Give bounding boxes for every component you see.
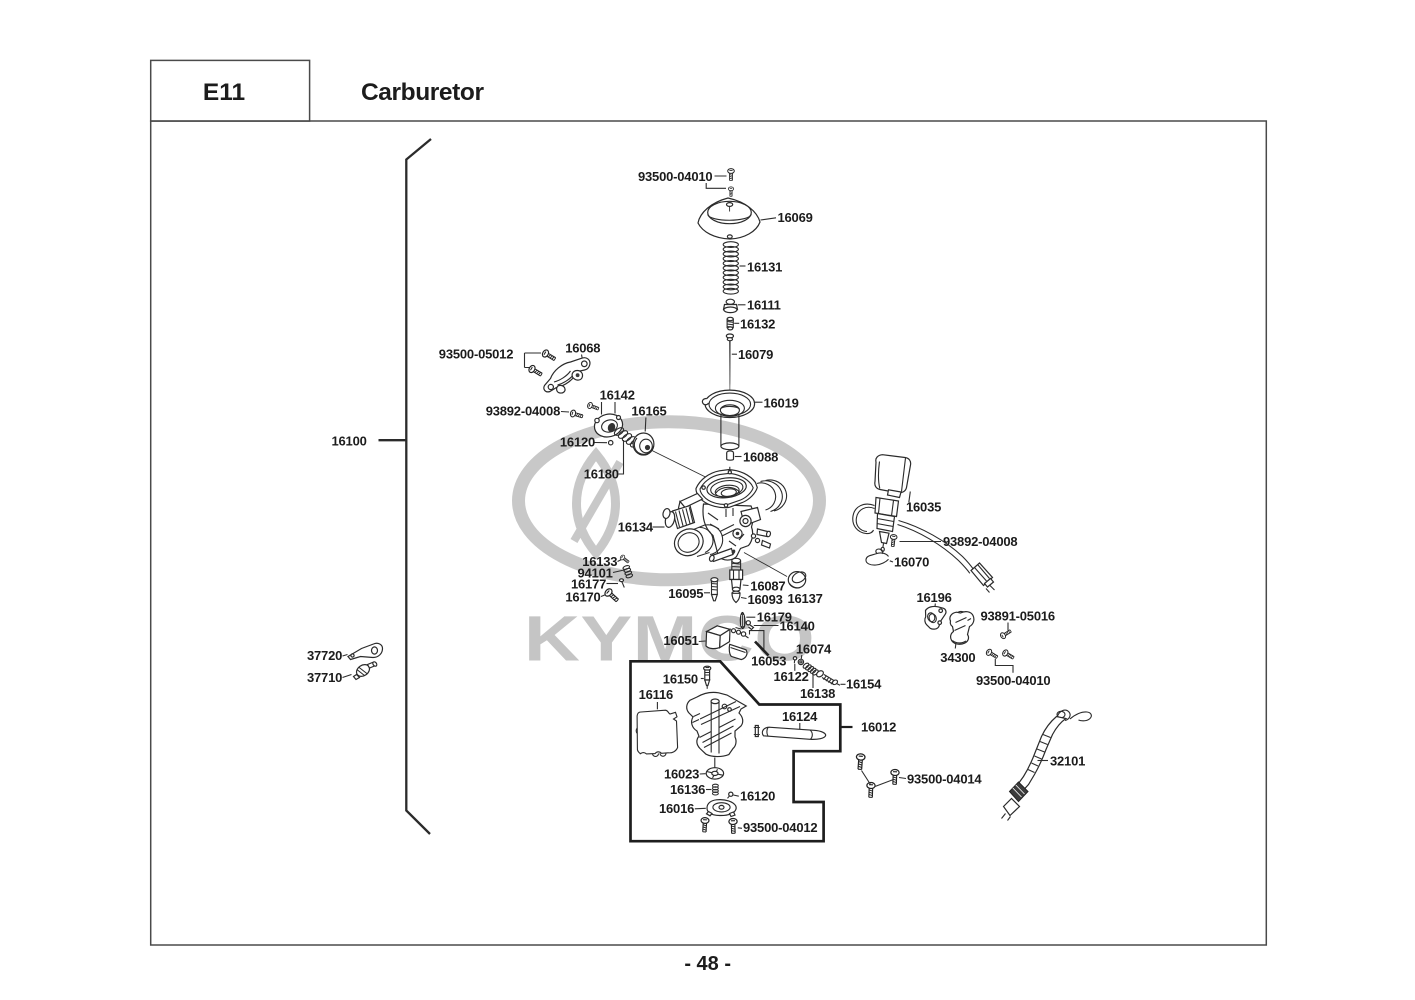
svg-text:16120: 16120 — [740, 789, 775, 804]
svg-text:93891-05016: 93891-05016 — [981, 609, 1055, 624]
svg-text:16124: 16124 — [782, 709, 818, 724]
svg-text:93500-04010: 93500-04010 — [638, 169, 712, 184]
svg-text:34300: 34300 — [940, 650, 975, 665]
svg-text:16111: 16111 — [747, 298, 781, 313]
svg-text:16053: 16053 — [751, 654, 786, 669]
svg-text:93500-04010: 93500-04010 — [976, 673, 1050, 688]
svg-text:Carburetor: Carburetor — [361, 79, 484, 106]
svg-text:16095: 16095 — [668, 586, 703, 601]
svg-text:16131: 16131 — [747, 260, 782, 275]
svg-text:16154: 16154 — [846, 677, 882, 692]
svg-text:16138: 16138 — [800, 686, 835, 701]
svg-text:16069: 16069 — [778, 210, 813, 225]
svg-text:16093: 16093 — [748, 592, 783, 607]
svg-text:16196: 16196 — [917, 590, 952, 605]
svg-text:16180: 16180 — [584, 467, 619, 482]
svg-text:16035: 16035 — [906, 500, 941, 515]
svg-text:16068: 16068 — [565, 341, 600, 356]
svg-text:16088: 16088 — [743, 450, 778, 465]
svg-text:16136: 16136 — [670, 782, 705, 797]
svg-text:E11: E11 — [203, 79, 245, 106]
svg-text:16142: 16142 — [600, 388, 635, 403]
svg-text:16019: 16019 — [764, 396, 799, 411]
svg-text:- 48 -: - 48 - — [684, 953, 731, 975]
svg-text:16134: 16134 — [618, 520, 654, 535]
svg-text:16012: 16012 — [861, 720, 896, 735]
svg-text:37720: 37720 — [307, 648, 342, 663]
svg-text:16023: 16023 — [664, 767, 699, 782]
svg-text:16016: 16016 — [659, 801, 694, 816]
svg-text:37710: 37710 — [307, 670, 342, 685]
svg-text:16120: 16120 — [560, 435, 595, 450]
svg-text:16070: 16070 — [894, 555, 929, 570]
svg-text:16051: 16051 — [663, 633, 698, 648]
svg-text:16137: 16137 — [788, 591, 823, 606]
svg-text:16165: 16165 — [631, 404, 666, 419]
svg-text:16140: 16140 — [780, 619, 815, 634]
svg-text:16170: 16170 — [565, 590, 600, 605]
svg-text:16074: 16074 — [796, 642, 832, 657]
svg-text:93500-04012: 93500-04012 — [743, 820, 817, 835]
svg-text:16122: 16122 — [774, 669, 809, 684]
svg-text:32101: 32101 — [1050, 754, 1085, 769]
svg-text:16079: 16079 — [738, 347, 773, 362]
svg-text:93892-04008: 93892-04008 — [486, 404, 560, 419]
svg-text:16150: 16150 — [663, 672, 698, 687]
svg-text:93892-04008: 93892-04008 — [943, 534, 1017, 549]
svg-text:93500-04014: 93500-04014 — [907, 772, 982, 787]
svg-text:93500-05012: 93500-05012 — [439, 347, 513, 362]
svg-text:16132: 16132 — [740, 317, 775, 332]
svg-text:16116: 16116 — [639, 687, 673, 702]
svg-text:16100: 16100 — [332, 434, 367, 449]
